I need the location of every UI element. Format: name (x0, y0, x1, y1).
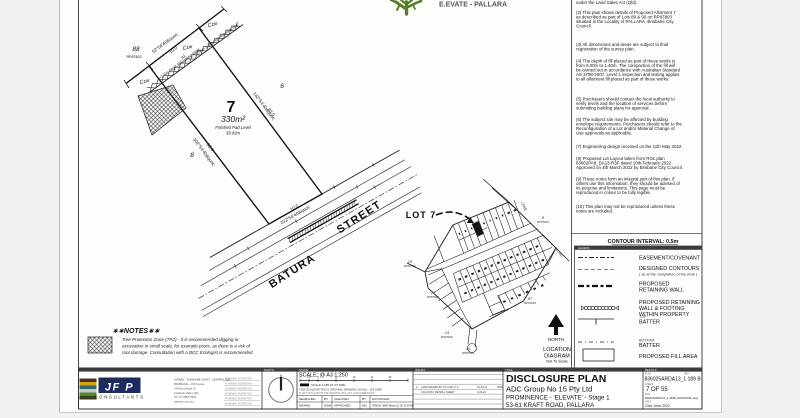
svg-text:Council.: Council. (576, 24, 592, 29)
svg-text:Fortitude Valley Qld: Fortitude Valley Qld (174, 391, 199, 395)
svg-text:RETAINING WALL: RETAINING WALL (639, 288, 684, 294)
svg-text:PLANNING SURVEYING: PLANNING SURVEYING (225, 393, 252, 396)
svg-text:submitting building plans for: submitting building plans for approval. (576, 106, 650, 111)
svg-text:RP87803: RP87803 (127, 55, 142, 59)
svg-text:Approved on 4th March 2022 by: Approved on 4th March 2022 by Brisbane C… (576, 165, 683, 170)
svg-text:BOTTOM: BOTTOM (639, 339, 654, 343)
svg-text:NORTH: NORTH (264, 368, 274, 372)
svg-text:BRISBANE - JFP House: BRISBANE - JFP House (174, 382, 205, 386)
svg-text:PLANNING SURVEYING: PLANNING SURVEYING (225, 388, 252, 391)
svg-text:RP87803: RP87803 (524, 301, 536, 305)
svg-text:PLANNING SURVEYING: PLANNING SURVEYING (225, 398, 252, 401)
svg-text:SHEET: SHEET (645, 383, 654, 386)
svg-text:Tree Protection Zone (TPZ) - I: Tree Protection Zone (TPZ) - It is recom… (122, 337, 239, 342)
svg-text:WITHIN PROPERTY: WITHIN PROPERTY (639, 312, 690, 318)
svg-text:RP87803: RP87803 (404, 264, 416, 268)
svg-text:8: 8 (190, 152, 194, 159)
svg-text:( as at the completion of the: ( as at the completion of the work ) (639, 273, 698, 277)
svg-text:Tel: 07 3852 3922: Tel: 07 3852 3922 (174, 395, 197, 399)
svg-text:RP87803: RP87803 (441, 335, 453, 339)
svg-text:EASEMENT/COVENANT: EASEMENT/COVENANT (639, 256, 701, 262)
svg-text:RP87803: RP87803 (462, 351, 474, 355)
svg-text:RP87803: RP87803 (427, 295, 439, 299)
svg-text:(7) Engineering design receive: (7) Engineering design received on the 1… (576, 144, 683, 149)
svg-text:23rd June 2022: 23rd June 2022 (645, 404, 670, 408)
svg-text:DESIGNED CONTOURS: DESIGNED CONTOURS (639, 266, 700, 272)
svg-text:SCALE: @ A3 1:250: SCALE: @ A3 1:250 (299, 373, 348, 379)
svg-text:www.jfp.com.au: www.jfp.com.au (174, 400, 194, 404)
svg-text:DRAWN: DRAWN (299, 404, 310, 408)
svg-text:836025ARDA13_1 189 B: 836025ARDA13_1 189 B (645, 377, 702, 383)
svg-text:ISSUES: ISSUES (415, 368, 425, 372)
svg-text:836025ARDA13_1-189B_R03-DS09L.: 836025ARDA13_1-189B_R03-DS09L.dwg (645, 396, 698, 400)
svg-text:LOCATION: LOCATION (543, 347, 571, 353)
svg-text:PLANNING SURVEYING: PLANNING SURVEYING (225, 378, 252, 381)
svg-text:DETAILS: DETAILS (645, 368, 657, 372)
svg-text:ORIGIN: BNE Mixed.21.29.33.D7: ORIGIN: BNE Mixed.21.29.33.D75# (372, 404, 414, 408)
svg-text:COA W RC RETWLL SHEET: COA W RC RETWLL SHEET (421, 390, 455, 394)
svg-text:6: 6 (280, 83, 284, 90)
svg-text:LOT 7: LOT 7 (406, 210, 437, 220)
svg-text:APPROVED: APPROVED (334, 404, 352, 408)
svg-text:registration of the survey pla: registration of the survey plan. (576, 47, 635, 52)
svg-text:39.93m: 39.93m (226, 131, 240, 136)
svg-text:DATUM AHD: DATUM AHD (372, 397, 390, 401)
svg-text:DM: DM (362, 404, 367, 408)
svg-text:NORTH: NORTH (548, 337, 564, 342)
svg-text:Not To Scale: Not To Scale (546, 360, 567, 364)
svg-text:under the Land Sales Act (Qld): under the Land Sales Act (Qld). (576, 0, 637, 5)
svg-text:BY: BY (362, 397, 366, 401)
svg-text:JF P: JF P (105, 382, 134, 394)
svg-text:PROPOSED FILL AREA: PROPOSED FILL AREA (639, 354, 698, 360)
svg-text:BATTER: BATTER (639, 343, 660, 349)
svg-text:PLANNING SURVEYING: PLANNING SURVEYING (225, 383, 252, 386)
svg-text:DWR: DWR (497, 385, 503, 389)
svg-text:PROMINENCE - 'ELEVATE' - Stage: PROMINENCE - 'ELEVATE' - Stage 1 (506, 395, 610, 402)
svg-text:TOP: TOP (639, 315, 647, 319)
svg-text:330m²: 330m² (221, 114, 246, 124)
svg-text:LEGEND: LEGEND (578, 246, 590, 250)
svg-text:CONSULTANTS: CONSULTANTS (94, 395, 144, 400)
svg-text:∗∗NOTES∗∗: ∗∗NOTES∗∗ (112, 328, 160, 335)
svg-text:SCALE: SCALE (299, 368, 308, 372)
svg-text:CHECKED: CHECKED (334, 397, 350, 401)
svg-text:root damage. Consultation with: root damage. Consultation with a BCC Eco… (122, 350, 254, 355)
svg-text:reproduced in colour to be ful: reproduced in colour to be fully legible… (576, 190, 651, 195)
svg-text:CONTOUR INTERVAL: 0.5m: CONTOUR INTERVAL: 0.5m (608, 239, 679, 245)
svg-text:E.EVATE - PALLARA: E.EVATE - PALLARA (439, 1, 507, 8)
svg-text:RP87803: RP87803 (537, 220, 549, 224)
svg-text:PLANNING SURVEYING: PLANNING SURVEYING (225, 403, 252, 406)
svg-text:PLAN: PLAN (645, 373, 652, 376)
svg-text:4-03-22: 4-03-22 (477, 390, 486, 394)
svg-text:IF NOT SCALE PRINT THE DRAWING: IF NOT SCALE PRINT THE DRAWING WILL NOT … (299, 392, 375, 395)
svg-text:to all allotment fill placed a: to all allotment fill placed as part of … (576, 77, 669, 82)
svg-text:SEARCHED: SEARCHED (299, 397, 317, 401)
svg-text:Finished Pad Level: Finished Pad Level (215, 125, 252, 130)
svg-text:ADC Group No 15 Pty Ltd: ADC Group No 15 Pty Ltd (506, 385, 592, 394)
svg-text:88: 88 (132, 46, 140, 53)
svg-text:BATTER: BATTER (639, 320, 660, 326)
svg-text:notes are included.: notes are included. (576, 208, 613, 213)
svg-text:SYDNEY - SUNSHINE COAST - CENT: SYDNEY - SUNSHINE COAST - CENTRAL QLD (174, 378, 230, 382)
svg-text:Use approvals as applicable.: Use approvals as applicable. (576, 131, 632, 136)
svg-text:53-61 KRAFT ROAD, PALLARA: 53-61 KRAFT ROAD, PALLARA (506, 402, 595, 409)
svg-text:478 Brunswick St: 478 Brunswick St (174, 386, 196, 390)
svg-text:TITLE: TITLE (505, 368, 513, 372)
svg-text:THIS SCALE/NOTES IS ORIGINAL D: THIS SCALE/NOTES IS ORIGINAL DRAWING SCA… (299, 388, 382, 392)
svg-text:16-06-21: 16-06-21 (477, 385, 488, 389)
svg-text:REV: REV (684, 373, 689, 376)
svg-text:SCALE 1:250 AT A3 SIZE: SCALE 1:250 AT A3 SIZE (311, 383, 345, 387)
svg-text:DWB: DWB (324, 404, 331, 408)
svg-text:DISCLOSURE PLAN: DISCLOSURE PLAN (506, 373, 606, 385)
svg-text:BY: BY (324, 397, 328, 401)
svg-text:LAND DRAWN BY TO A RD U S: LAND DRAWN BY TO A RD U S (421, 385, 459, 389)
svg-text:excavation in small scale, for: excavation in small scale, for example p… (122, 344, 251, 349)
